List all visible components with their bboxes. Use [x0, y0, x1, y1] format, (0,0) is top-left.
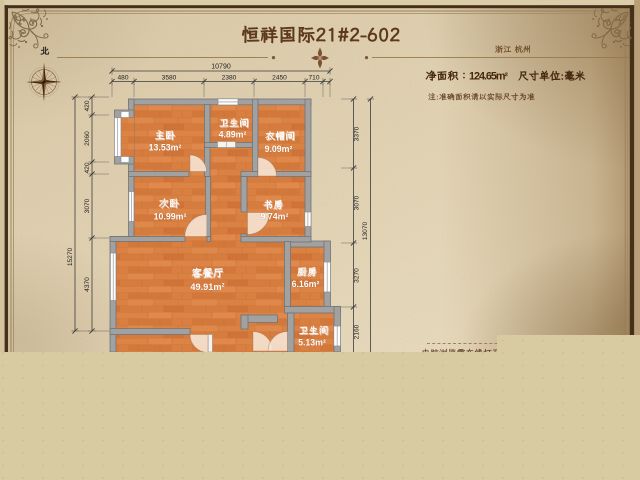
svg-text:3070: 3070	[84, 198, 91, 213]
svg-text:3370: 3370	[354, 126, 361, 141]
svg-text:3070: 3070	[354, 195, 361, 210]
svg-text:2060: 2060	[84, 131, 91, 146]
svg-text:5.13m²: 5.13m²	[298, 338, 326, 348]
svg-text:13070: 13070	[362, 222, 369, 241]
svg-text:2450: 2450	[272, 74, 287, 81]
svg-text:124.65m²: 124.65m²	[469, 71, 508, 83]
svg-text:420: 420	[84, 162, 91, 173]
svg-text:2380: 2380	[222, 74, 237, 81]
svg-text:10.99m²: 10.99m²	[154, 212, 187, 222]
svg-text:4.89m²: 4.89m²	[219, 130, 247, 140]
svg-text:6.16m²: 6.16m²	[292, 279, 320, 289]
svg-text:2160: 2160	[354, 324, 361, 339]
svg-text:3270: 3270	[354, 268, 361, 283]
svg-text:9.09m²: 9.09m²	[265, 144, 293, 154]
svg-text:710: 710	[308, 74, 319, 81]
svg-text:9.74m²: 9.74m²	[261, 212, 289, 222]
svg-text:49.91m²: 49.91m²	[190, 282, 224, 292]
svg-text:3580: 3580	[162, 74, 177, 81]
svg-text:13.53m²: 13.53m²	[149, 143, 182, 153]
svg-text:480: 480	[117, 74, 128, 81]
svg-text:420: 420	[84, 100, 91, 111]
svg-text:10790: 10790	[211, 64, 231, 71]
svg-text:4370: 4370	[84, 277, 91, 292]
svg-text:15270: 15270	[67, 248, 74, 267]
